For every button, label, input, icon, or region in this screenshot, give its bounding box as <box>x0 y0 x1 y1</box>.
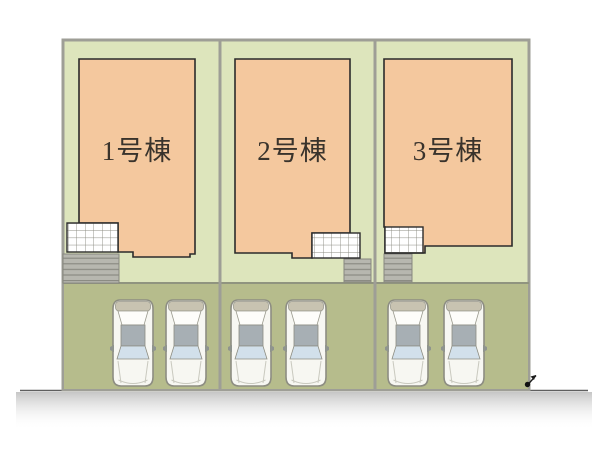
entrance-steps-lot3 <box>384 254 412 282</box>
car-icon <box>110 300 156 386</box>
lot-divider-1-2 <box>219 40 222 390</box>
porch-tile-grid-lot1 <box>67 223 118 252</box>
car-icon <box>385 300 431 386</box>
entrance-steps-lot2 <box>344 259 371 282</box>
road-surface <box>16 392 592 430</box>
building-1-label: 1号棟 <box>79 134 195 168</box>
entrance-steps-lot1 <box>63 254 119 283</box>
porch-tile-grid-lot3 <box>385 227 423 253</box>
site-layout-plan: 1号棟 2号棟 3号棟 <box>0 0 600 450</box>
car-icon <box>163 300 209 386</box>
lot-divider-2-3 <box>374 40 377 390</box>
car-icon <box>441 300 487 386</box>
car-icon <box>228 300 274 386</box>
porch-tile-grid-lot2 <box>312 233 360 258</box>
site-plan-drawing <box>0 0 600 450</box>
car-icon <box>283 300 329 386</box>
building-2-label: 2号棟 <box>235 134 350 168</box>
building-3-label: 3号棟 <box>384 134 512 168</box>
